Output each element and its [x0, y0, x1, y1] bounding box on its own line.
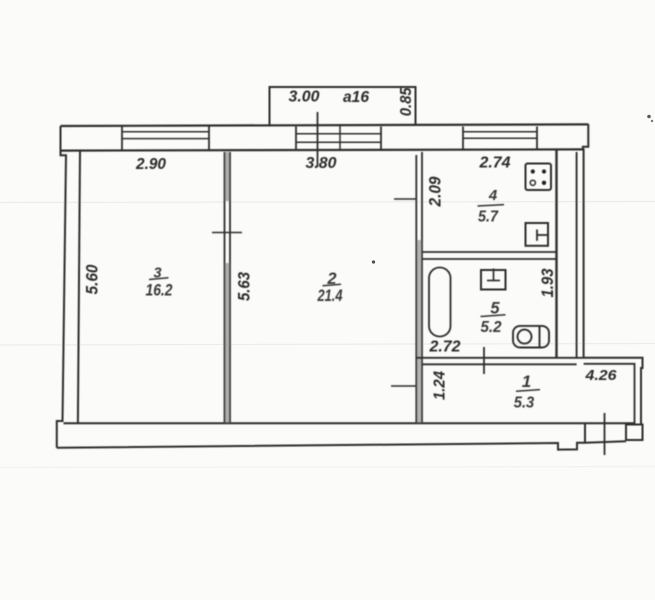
svg-text:3.80: 3.80: [306, 155, 337, 172]
svg-text:2.09: 2.09: [427, 176, 445, 208]
svg-text:3.00: 3.00: [289, 89, 320, 106]
svg-text:0.85: 0.85: [398, 86, 415, 116]
svg-text:16.2: 16.2: [146, 281, 173, 300]
svg-text:2.74: 2.74: [478, 155, 510, 172]
svg-text:21.4: 21.4: [317, 287, 343, 305]
svg-text:2: 2: [326, 270, 336, 288]
svg-text:1.93: 1.93: [539, 269, 557, 298]
svg-text:5.7: 5.7: [478, 209, 499, 226]
svg-text:5.60: 5.60: [84, 264, 102, 295]
svg-text:1: 1: [522, 372, 531, 391]
svg-text:5: 5: [490, 300, 500, 318]
svg-text:4.26: 4.26: [584, 367, 617, 384]
svg-text:2.72: 2.72: [428, 339, 460, 356]
svg-text:5.63: 5.63: [236, 272, 254, 301]
svg-text:а16: а16: [343, 89, 369, 106]
svg-text:2.90: 2.90: [135, 156, 166, 173]
svg-text:5.2: 5.2: [481, 319, 502, 336]
svg-text:1.24: 1.24: [432, 371, 449, 400]
svg-text:5.3: 5.3: [514, 395, 535, 412]
svg-text:3: 3: [153, 266, 161, 282]
